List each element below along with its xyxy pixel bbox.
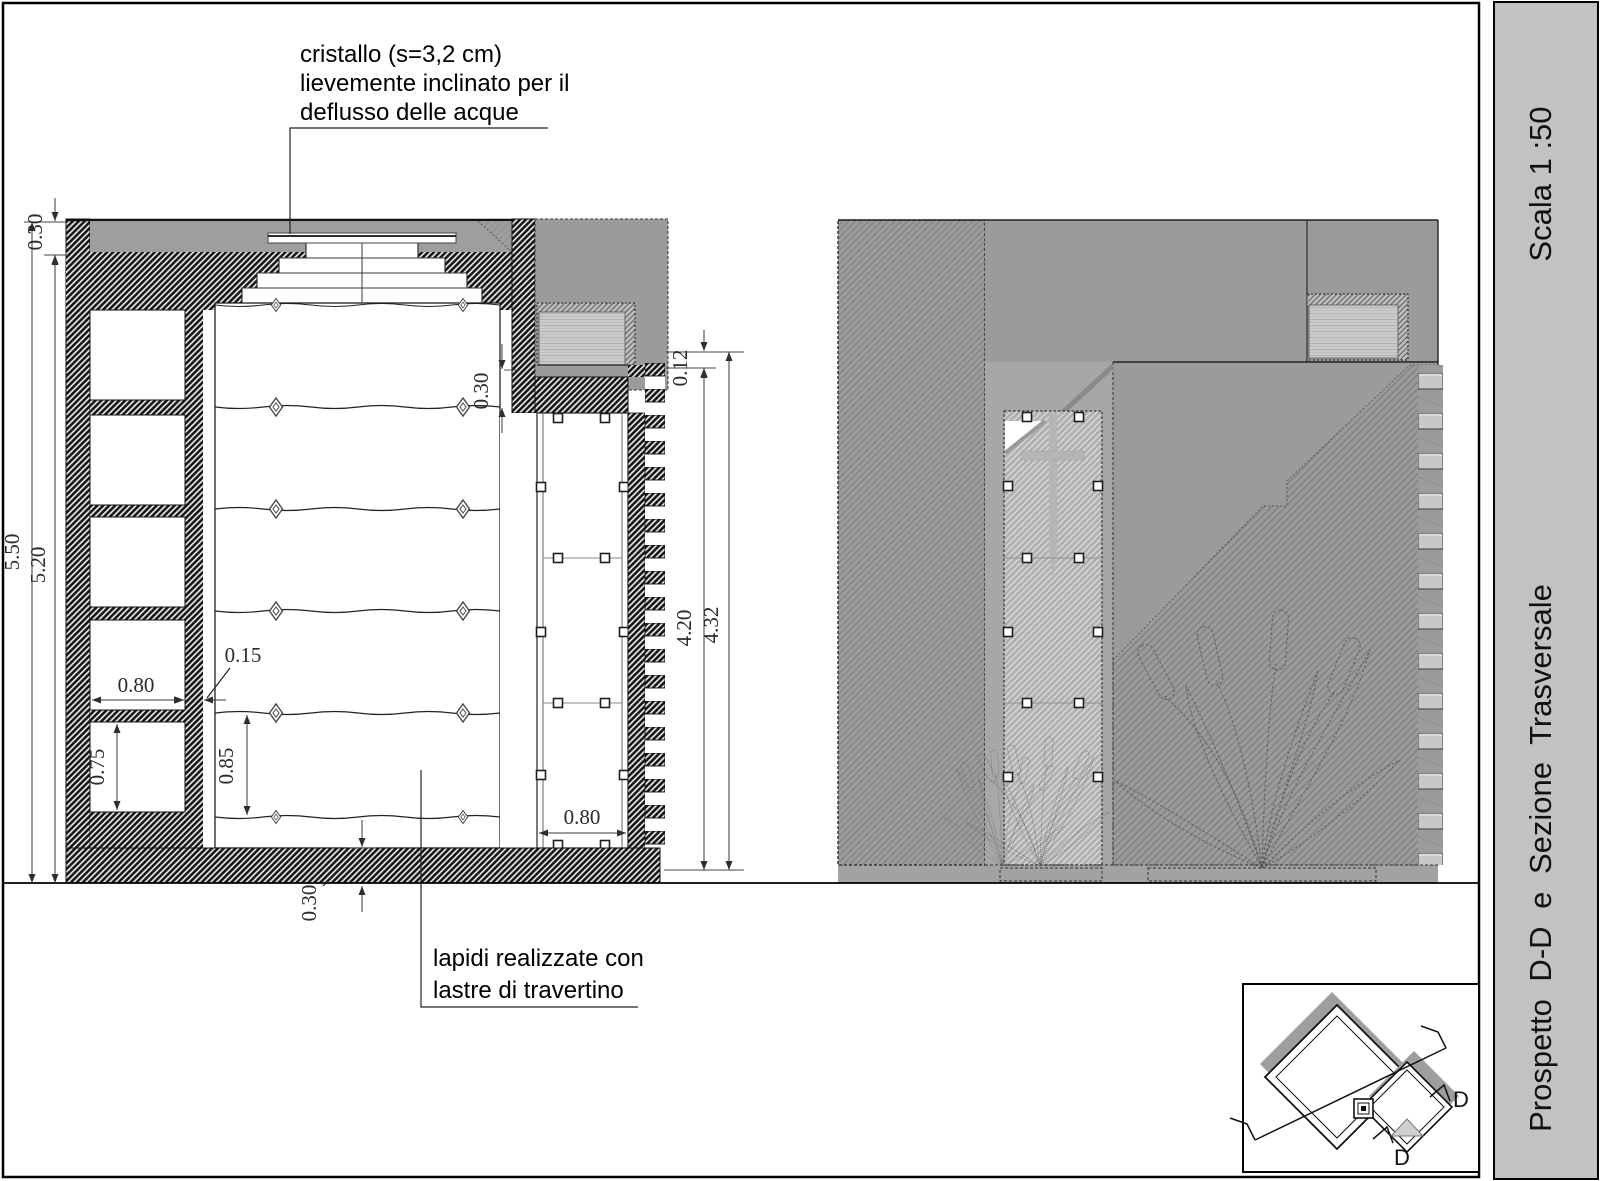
anchor-clip: [601, 554, 610, 563]
slabs-note-line1: lapidi realizzate con: [433, 945, 644, 972]
anchor-clip: [1094, 773, 1103, 782]
window-frame-right: [625, 312, 635, 365]
burial-panel: [215, 299, 500, 848]
elevation-drawing: [838, 220, 1443, 883]
pilaster-gap: [500, 413, 537, 848]
anchor-clip: [537, 483, 546, 492]
dimension-label-opening-height: 4.32: [699, 607, 723, 644]
anchor-clip: [620, 771, 629, 780]
door-lintel-cut: [535, 377, 628, 413]
section-drawing: [66, 219, 668, 883]
right-wall-cut: [512, 219, 535, 413]
skylight-note-line2: lievemente inclinato per il: [300, 70, 569, 97]
anchor-clip: [1004, 628, 1013, 637]
dimension-label-door-width: 0.80: [564, 805, 601, 829]
floor-slab-cut: [66, 848, 660, 883]
niche: [90, 310, 185, 400]
anchor-clip: [1094, 628, 1103, 637]
dimension-label-door-height: 4.20: [672, 610, 696, 647]
plan-skylight-symbol-core: [1361, 1106, 1366, 1111]
section-label-d-bottom: D: [1394, 1145, 1410, 1170]
dimension-label-total-height: 5.50: [0, 534, 24, 571]
skylight-note-line3: deflusso delle acque: [300, 99, 519, 126]
anchor-clip: [554, 554, 563, 563]
anchor-clip: [537, 771, 546, 780]
dimension-label-slab-height: 0.85: [214, 748, 238, 785]
anchor-clip: [620, 628, 629, 637]
corner-comb-elevation: [1418, 365, 1443, 865]
slabs-note-line2: lastre di travertino: [433, 977, 624, 1004]
niche: [90, 517, 185, 607]
skylight-glass: [268, 233, 456, 243]
right-jamb-cut: [628, 413, 645, 848]
anchor-clip: [1075, 699, 1084, 708]
upper-facade-left: [985, 220, 1307, 362]
anchor-clip: [601, 414, 610, 423]
anchor-clip: [537, 628, 546, 637]
drawing-sheet: 0.30 5.50 5.20 0.80 0.75 0.15 0.85 0.30 …: [0, 0, 1600, 1181]
facade-window: [1307, 294, 1408, 360]
anchor-clip: [601, 699, 610, 708]
key-plan-inset: D D: [1230, 984, 1479, 1172]
anchor-clip: [1075, 554, 1084, 563]
dimension-label-slab-top: 0.30: [469, 373, 493, 410]
anchor-clip: [554, 414, 563, 423]
anchor-clip: [1004, 482, 1013, 491]
anchor-clip: [620, 483, 629, 492]
ventilation-comb-section: [645, 363, 665, 848]
anchor-clip: [1023, 413, 1032, 422]
dimension-label-ledge: 0.12: [668, 350, 692, 387]
anchor-clip: [1023, 699, 1032, 708]
anchor-clip: [1075, 413, 1084, 422]
anchor-clip: [1094, 482, 1103, 491]
anchor-clip: [554, 699, 563, 708]
anchor-clip: [1004, 773, 1013, 782]
section-label-d-right: D: [1453, 1087, 1469, 1112]
dimension-label-niche-width: 0.80: [118, 673, 155, 697]
title-sidebar: Scala 1 :50 Prospetto D-D e Sezione Tras…: [1494, 2, 1598, 1179]
scale-label: Scala 1 :50: [1523, 106, 1558, 261]
dimension-label-partition: 0.15: [225, 643, 262, 667]
niche: [90, 415, 185, 505]
door-opening: [500, 413, 629, 850]
window-glass: [539, 312, 625, 365]
dimension-label-roof: 0.30: [23, 214, 47, 251]
sheet-canvas: 0.30 5.50 5.20 0.80 0.75 0.15 0.85 0.30 …: [0, 0, 1600, 1181]
side-slab: [838, 220, 985, 865]
window-frame-top: [537, 303, 635, 312]
door-cross-horizontal: [1022, 451, 1084, 460]
dimension-label-floor: 0.30: [297, 885, 321, 922]
dimension-label-inner-height: 5.20: [26, 547, 50, 584]
dimension-label-niche-height: 0.75: [85, 749, 109, 786]
entrance-door-panel: [1004, 411, 1103, 865]
skylight-note-line1: cristallo (s=3,2 cm): [300, 41, 502, 68]
anchor-clip: [1023, 554, 1032, 563]
door-cross-vertical: [1049, 413, 1057, 548]
sheet-title: Prospetto D-D e Sezione Trasversale: [1523, 584, 1558, 1132]
